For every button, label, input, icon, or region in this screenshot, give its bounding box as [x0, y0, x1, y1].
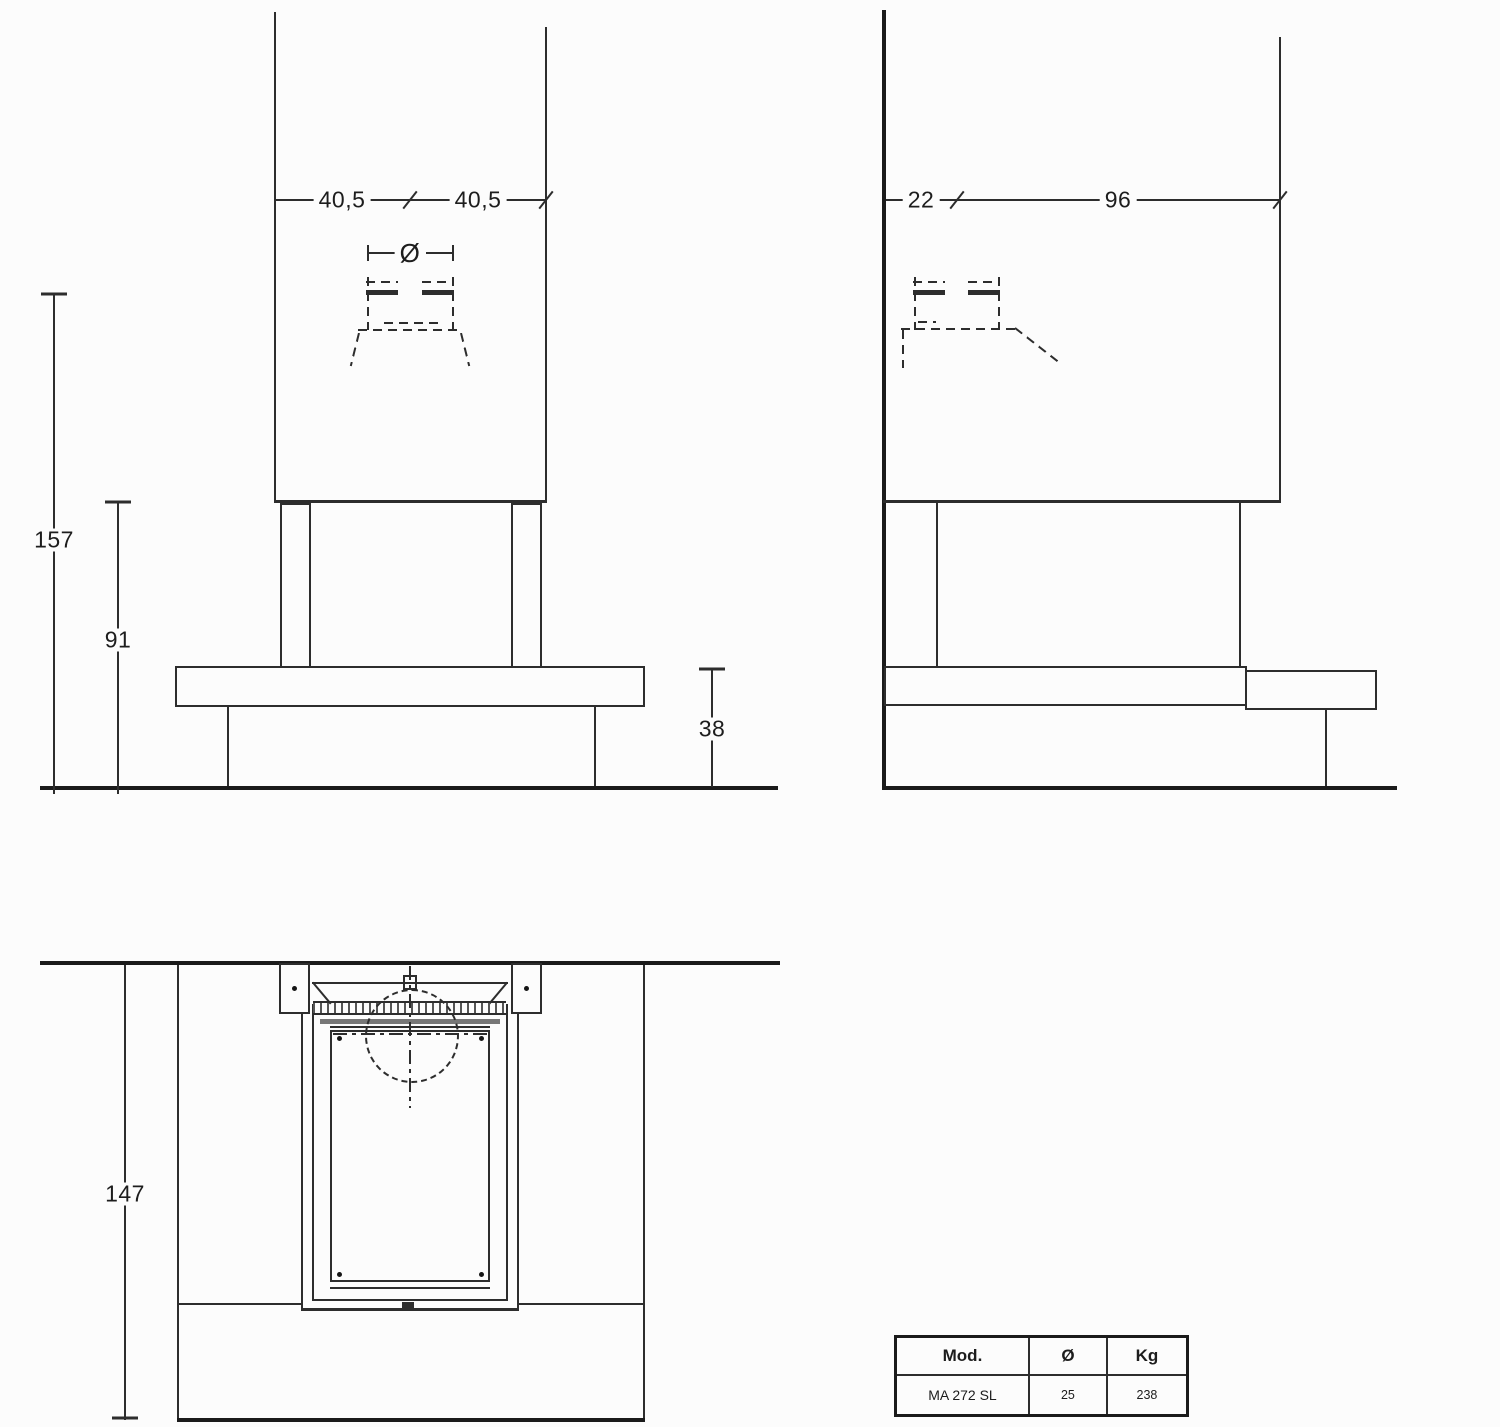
plan-hood-center-mark [402, 1302, 414, 1308]
front-collar-bar-right [422, 290, 454, 295]
spec-table-diameter-value: 25 [1030, 1376, 1108, 1414]
plan-wall-block-left-dot [292, 986, 297, 991]
front-width-dim-label-left: 40,5 [314, 189, 371, 212]
plan-firebox-dot-br [479, 1272, 484, 1277]
side-breast-bottom-line [883, 500, 1281, 503]
dim-147-label: 147 [100, 1183, 150, 1206]
dim-38-top-tick [699, 668, 725, 671]
side-hood-top-dash [901, 328, 1015, 330]
spec-table-header-diameter: Ø [1030, 1338, 1108, 1374]
front-chimney-right-edge [545, 27, 547, 502]
plan-firebox-bottom-double [330, 1287, 490, 1289]
spec-table-header-row: Mod. Ø Kg [897, 1338, 1186, 1376]
side-plinth-front-edge [1325, 710, 1327, 787]
spec-table-data-row: MA 272 SL 25 238 [897, 1376, 1186, 1414]
plan-firebox-dot-bl [337, 1272, 342, 1277]
plan-hood-outer-right [517, 1014, 519, 1310]
spec-table-kg-value: 238 [1108, 1376, 1186, 1414]
side-hood-notch-dash [918, 321, 936, 323]
front-collar-bar-left [366, 290, 398, 295]
side-depth-dim-line [886, 199, 1280, 201]
dim-157-label: 157 [29, 529, 79, 552]
front-hood-flare-right [460, 333, 470, 366]
plan-hood-inner-bottom [312, 1299, 508, 1301]
front-breast-bottom-line [274, 500, 547, 503]
dim-38-label: 38 [694, 718, 731, 741]
spec-table: Mod. Ø Kg MA 272 SL 25 238 [894, 1335, 1189, 1417]
plan-bench-inner-line-right [519, 1303, 644, 1305]
front-leg-right [511, 503, 542, 668]
spec-table-header-mod: Mod. [897, 1338, 1030, 1374]
side-ground-line [883, 786, 1397, 790]
plan-hood-inner-right [506, 1004, 508, 1301]
side-hood-back-edge [936, 503, 938, 667]
front-hood-notch-dash [384, 322, 438, 324]
front-hood-flare-left [350, 333, 360, 366]
side-collar-dash-top-left [913, 281, 945, 283]
flue-dia-line-right [426, 252, 453, 254]
front-plinth-left-edge [227, 707, 229, 787]
flue-dia-line-left [368, 252, 396, 254]
plan-wall-line [40, 961, 780, 965]
front-hood-top-dash [358, 329, 462, 331]
side-chimney-front-edge [1279, 37, 1281, 503]
side-hood-slope-dash [1014, 327, 1061, 364]
front-chimney-left-edge [274, 12, 276, 502]
front-collar-side-right [452, 277, 454, 330]
plan-hood-outer-bottom [301, 1308, 519, 1311]
front-ground-line [40, 786, 778, 790]
plan-bench-bottom-edge [177, 1418, 645, 1422]
dim-91-top-tick [105, 501, 131, 504]
plan-bench-right-edge [643, 965, 645, 1422]
side-hood-front-corner-dash [902, 330, 904, 368]
side-bench-front-block [1245, 670, 1377, 710]
plan-hood-outer-left [301, 1014, 303, 1310]
plan-hood-inner-left [312, 1004, 314, 1301]
side-dim-22-label: 22 [903, 189, 940, 212]
side-hood-front-edge [1239, 503, 1241, 667]
front-bench-slab [175, 666, 645, 707]
side-collar-bar-left [913, 290, 945, 295]
plan-flue-circle [365, 989, 459, 1083]
front-collar-dash-top-left [366, 281, 398, 283]
technical-drawing-canvas: 40,5 40,5 Ø 157 91 [0, 0, 1500, 1427]
side-bench-back-slab [884, 666, 1247, 706]
side-collar-side-right [998, 277, 1000, 330]
dim-147-bottom-tick [112, 1417, 138, 1420]
plan-wall-block-right-dot [524, 986, 529, 991]
plan-firebox-dot-tl [337, 1036, 342, 1041]
plan-bench-inner-line-left [178, 1303, 302, 1305]
plan-bench-left-edge [177, 965, 179, 1422]
front-width-dim-label-right: 40,5 [450, 189, 507, 212]
plan-centerline-vertical [409, 966, 411, 1108]
dim-157-top-tick [41, 293, 67, 296]
side-collar-side-left [914, 277, 916, 330]
front-collar-dash-top-right [422, 281, 454, 283]
front-leg-left [280, 503, 311, 668]
side-collar-bar-right [968, 290, 1000, 295]
spec-table-model-value: MA 272 SL [897, 1376, 1030, 1414]
plan-firebox-dot-tr [479, 1036, 484, 1041]
spec-table-header-kg: Kg [1108, 1338, 1186, 1374]
plan-centerline-horizontal [333, 1033, 487, 1035]
dim-91-label: 91 [100, 629, 137, 652]
side-collar-dash-top-right [968, 281, 1000, 283]
flue-diameter-symbol: Ø [395, 240, 426, 266]
front-collar-side-left [367, 277, 369, 330]
front-plinth-right-edge [594, 707, 596, 787]
side-dim-96-label: 96 [1100, 189, 1137, 212]
